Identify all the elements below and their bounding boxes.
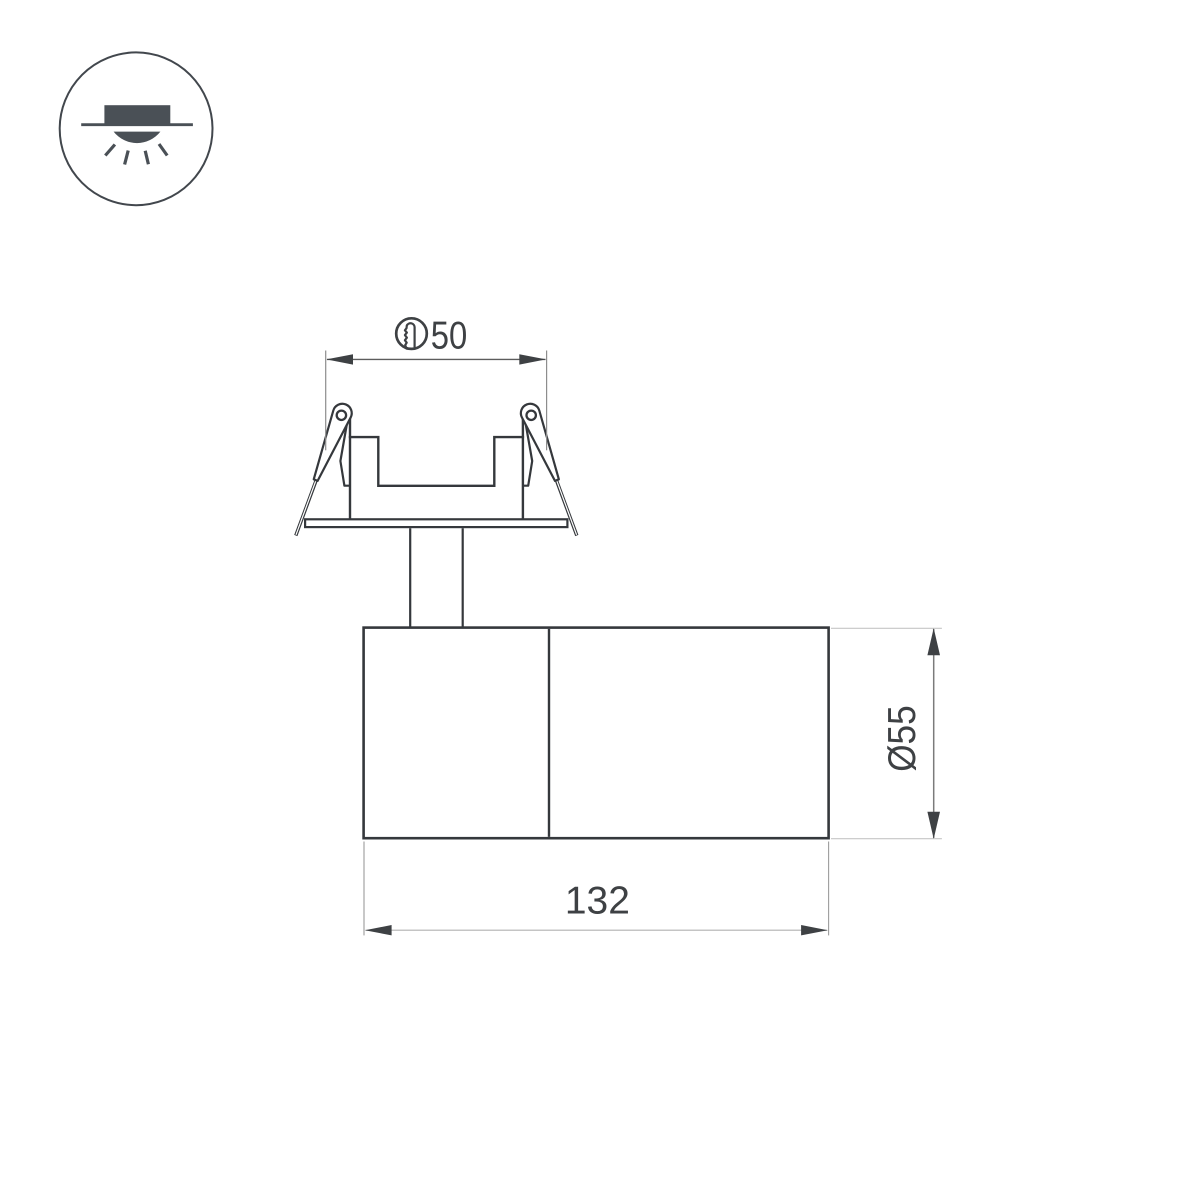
svg-text:Ø55: Ø55 bbox=[881, 705, 924, 772]
svg-text:132: 132 bbox=[565, 880, 630, 923]
svg-text:50: 50 bbox=[431, 314, 468, 357]
